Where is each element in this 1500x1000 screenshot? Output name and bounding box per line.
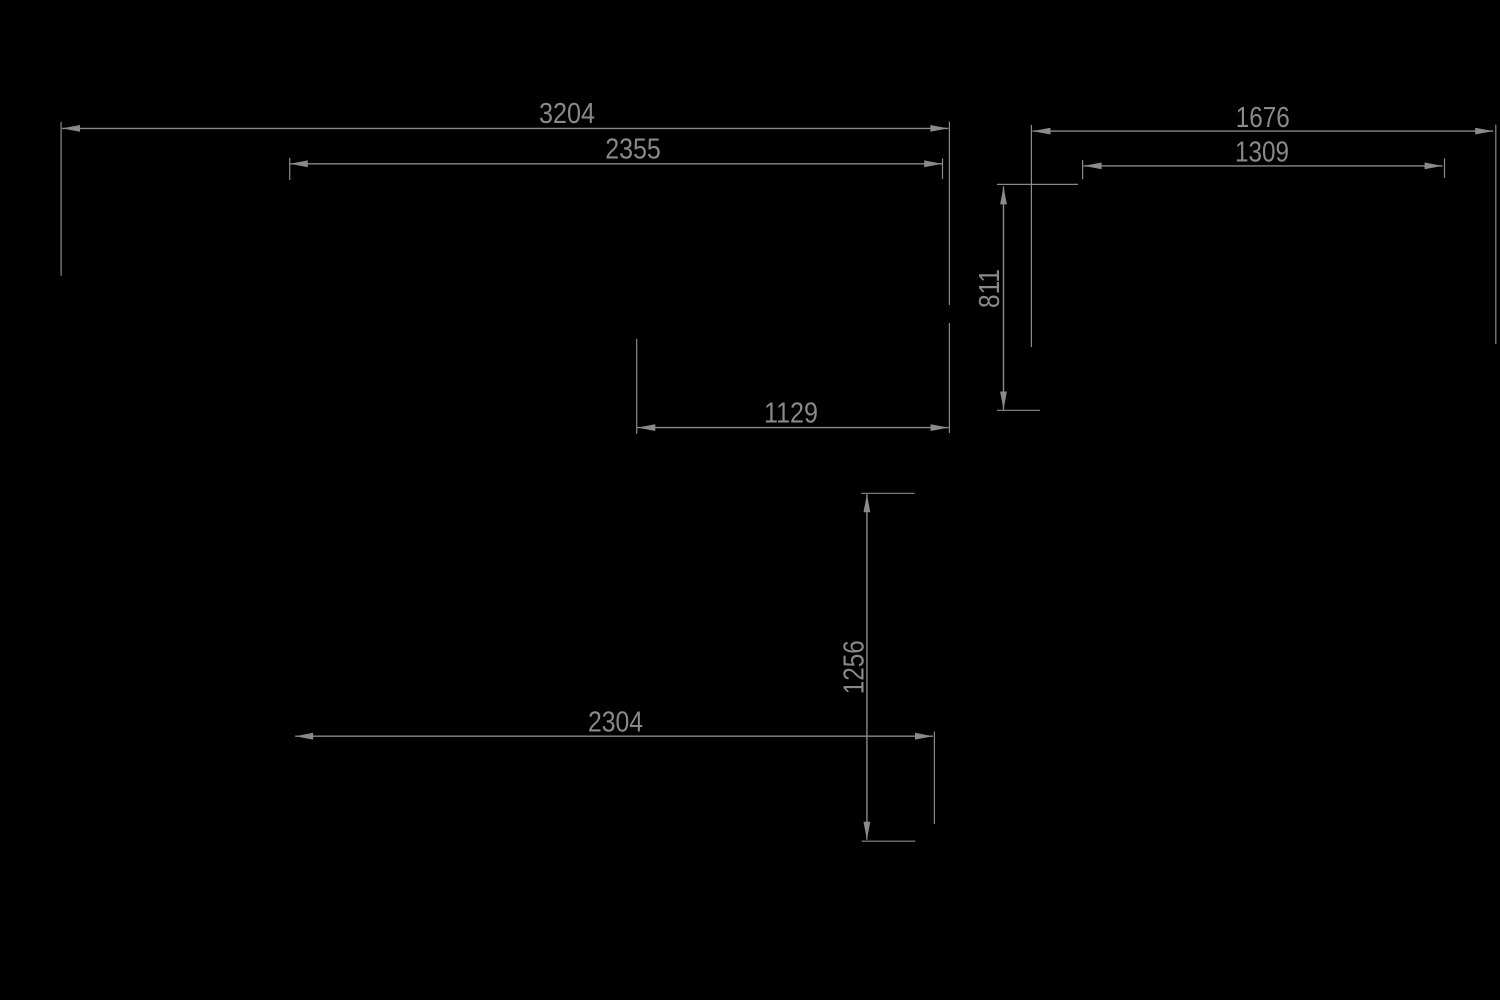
svg-text:1129: 1129	[764, 398, 818, 430]
svg-text:1309: 1309	[1235, 136, 1289, 168]
svg-text:1256: 1256	[838, 640, 870, 694]
svg-text:1676: 1676	[1236, 102, 1290, 134]
svg-text:2355: 2355	[605, 134, 661, 166]
svg-text:2304: 2304	[588, 706, 643, 738]
svg-text:811: 811	[974, 269, 1006, 308]
svg-text:3204: 3204	[539, 98, 595, 130]
